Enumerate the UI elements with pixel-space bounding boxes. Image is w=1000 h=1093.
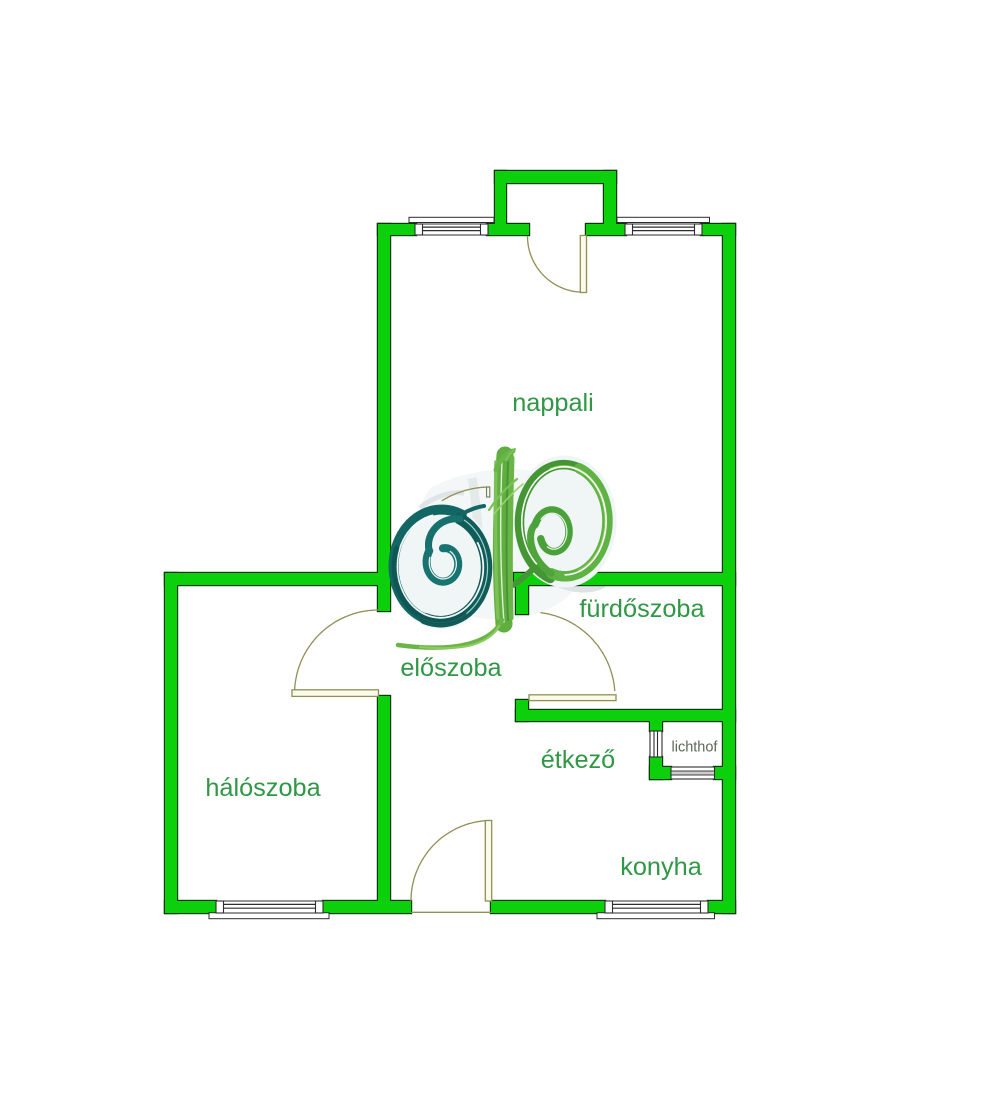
svg-text:fürdőszoba: fürdőszoba bbox=[579, 595, 705, 623]
svg-text:lichthof: lichthof bbox=[672, 740, 719, 756]
svg-text:nappali: nappali bbox=[512, 389, 594, 417]
svg-text:hálószoba: hálószoba bbox=[205, 774, 321, 802]
svg-text:konyha: konyha bbox=[620, 853, 703, 881]
svg-text:előszoba: előszoba bbox=[400, 654, 502, 682]
svg-text:étkező: étkező bbox=[541, 746, 616, 774]
